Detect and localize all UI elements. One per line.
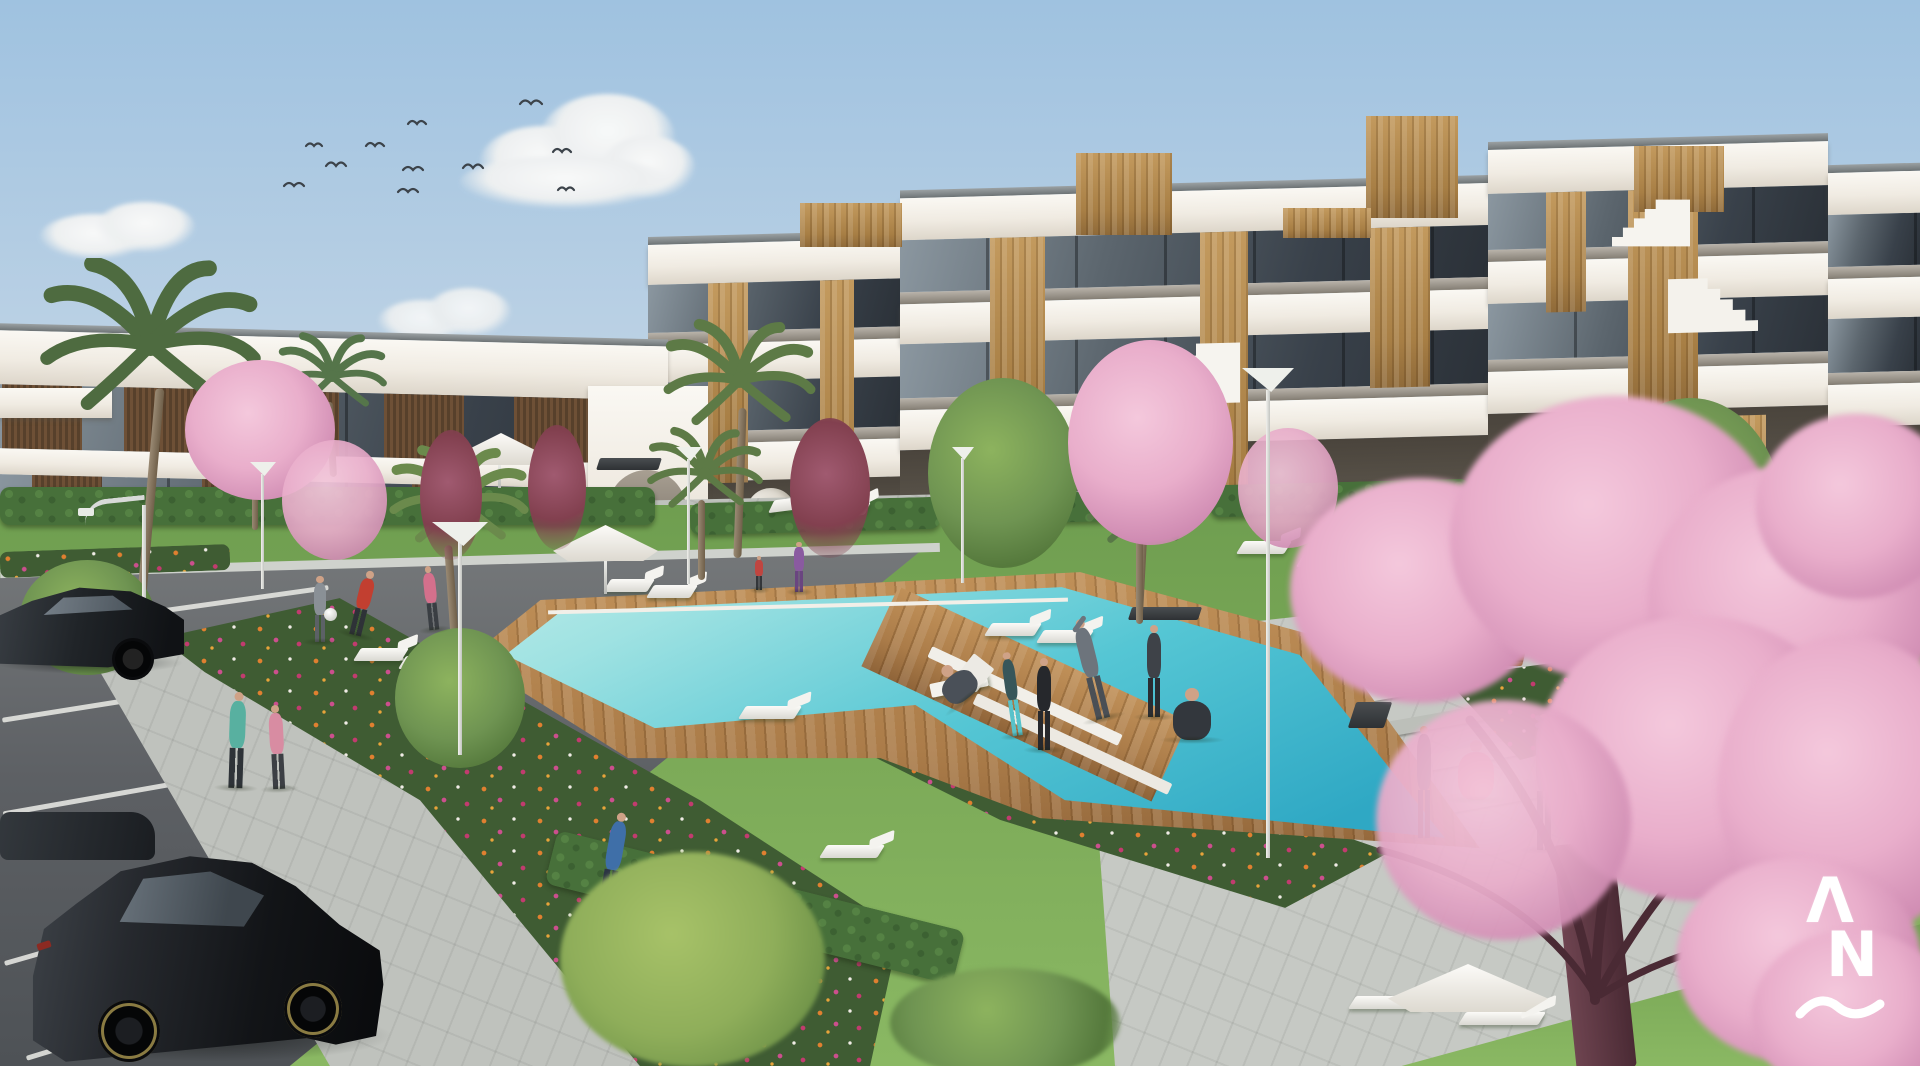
person-legs [1008,699,1023,736]
person-legs [1148,678,1160,717]
person-head [1150,625,1158,633]
rooftop-wood-tower [1366,116,1458,218]
developer-logo: Λ N [1790,870,1910,1045]
person-legs [1038,711,1050,750]
person-torso [1173,701,1212,740]
foreground-bush [560,852,825,1066]
person-torso [229,701,246,748]
person-walking [790,542,808,592]
car-wheel [284,980,342,1038]
cloud-puff [95,202,195,252]
cloud [40,200,200,266]
person-torso [755,560,762,576]
sun-lounger [819,845,885,858]
green-tree [928,378,1078,568]
bird-flock [248,82,593,207]
street-lamp-pole [961,458,964,583]
car-wheel [112,638,154,680]
car-wheel [98,1000,160,1062]
floor-slab [1828,277,1920,319]
staircase-gable [1612,198,1690,248]
person-head [234,692,243,701]
sun-lounger [353,648,409,661]
wood-panel [1546,191,1586,312]
person-head [316,576,323,583]
person-torso [794,547,803,571]
cherry-blossom-canopy [1376,700,1631,940]
person-legs [427,603,439,631]
parasol-pole [604,558,607,594]
person-tracksuit [1030,658,1058,750]
staircase-gable [1668,275,1758,335]
person-torso [355,577,376,610]
street-lamp-pole [1266,390,1270,858]
street-lamp-pole [458,540,462,755]
person-legs [756,576,762,590]
sun-lounger [603,579,655,592]
parked-car-sedan [0,580,184,675]
rooftop-wood-tower [1076,153,1172,235]
person-legs [229,747,244,788]
purple-leaf-tree [420,430,482,560]
person-legs [315,615,326,642]
logo-letter-bottom: N [1826,924,1878,986]
person-torso [1147,633,1162,678]
rooftop-wood-tower [800,203,902,247]
cherry-blossom-tree [1068,340,1233,545]
architectural-render-scene: Λ N [0,0,1920,1066]
person-legs [272,753,285,789]
person-jogger [262,704,292,789]
person-legs [1086,675,1109,720]
balcony-glazing [1828,317,1920,373]
person-yoga [1170,688,1214,740]
person-exercising [1140,625,1168,717]
sun-lounger [738,706,802,719]
person-torso [1001,659,1019,701]
cloud-puff [426,288,511,336]
tree-trunk [1136,540,1143,624]
person-head [271,705,279,713]
parked-car-hatchback [22,852,387,1066]
wood-panel [1370,227,1430,389]
street-lamp-pole [261,474,264,589]
street-lamp-pole [687,459,690,584]
ball [324,608,337,621]
person-torso [604,820,628,871]
person-jogger [220,692,253,789]
curved-lamp-head [78,508,94,516]
person-head [1040,658,1048,666]
person-torso [1037,666,1052,711]
palm-tree [646,424,764,516]
balcony-glazing [1828,213,1920,267]
palm-tree [662,318,817,433]
person-legs [349,607,367,636]
logo-wave-icon [1794,988,1886,1030]
person-torso [423,572,438,604]
person-child [752,556,766,590]
sun-lounger [984,623,1042,636]
sun-lounger [646,585,698,598]
person-legs [795,571,803,592]
purple-leaf-tree [790,418,870,558]
parapet-slab [1828,171,1920,215]
person-torso [1073,626,1100,678]
person-torso [268,712,284,753]
purple-leaf-tree [528,425,586,550]
person-head [1185,688,1198,701]
rooftop-wood-strip [1283,208,1371,238]
cherry-blossom-tree [282,440,387,560]
